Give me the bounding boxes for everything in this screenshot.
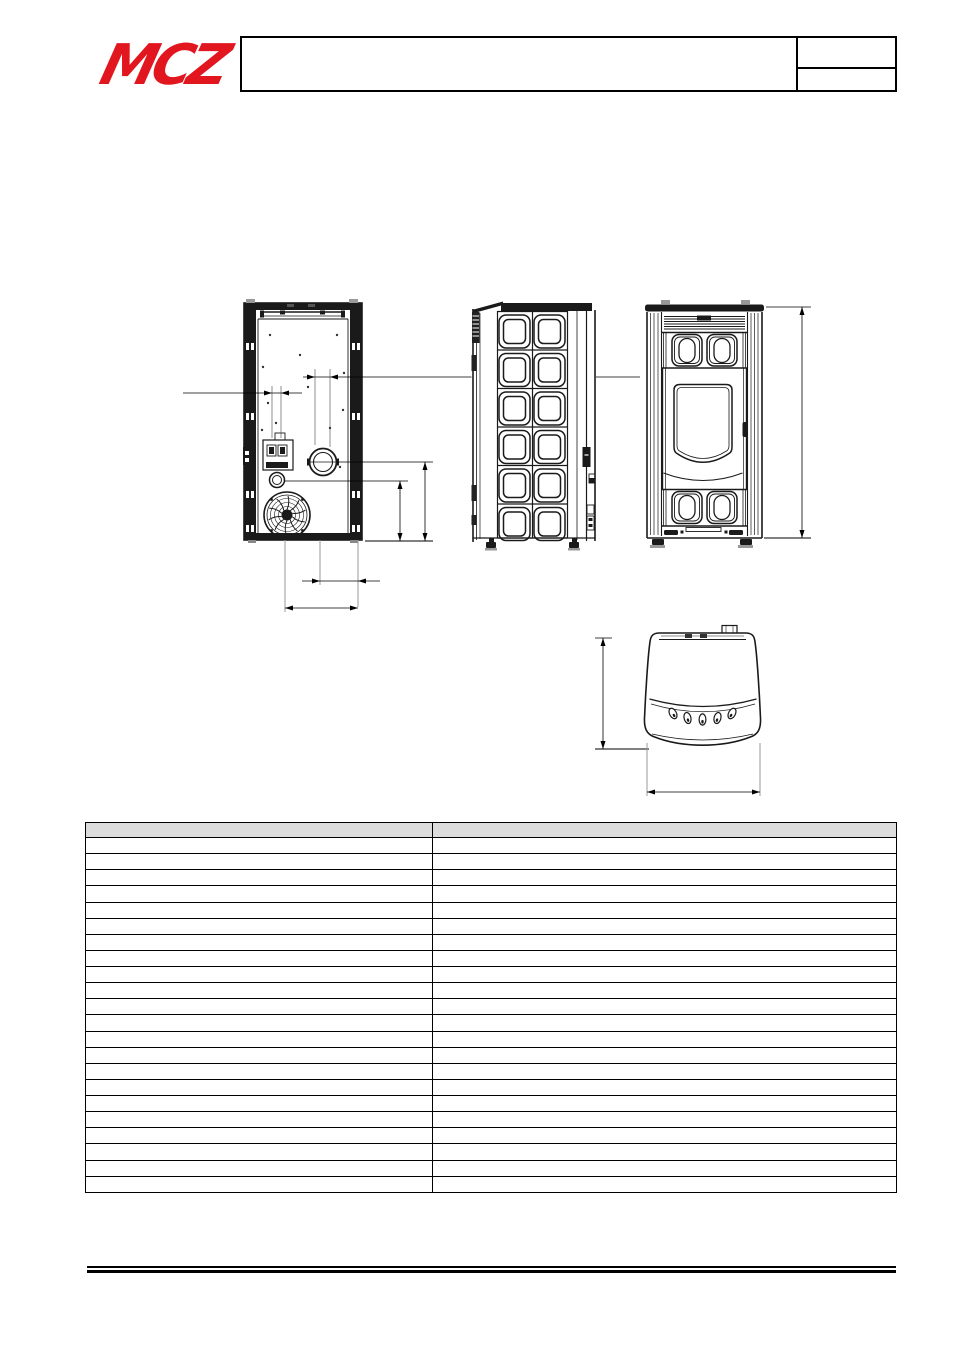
table-cell	[86, 838, 433, 854]
table-cell	[433, 886, 897, 902]
table-cell	[433, 838, 897, 854]
table-row	[86, 983, 897, 999]
table-row	[86, 870, 897, 886]
table-row	[86, 934, 897, 950]
table-row	[86, 1144, 897, 1160]
table-cell	[86, 1015, 433, 1031]
table-cell	[86, 886, 433, 902]
table-cell	[433, 1096, 897, 1112]
table-row	[86, 1015, 897, 1031]
front-view-drawing	[630, 295, 815, 550]
side-view-drawing	[455, 295, 605, 555]
table-cell	[86, 902, 433, 918]
table-cell	[433, 1079, 897, 1095]
table-row	[86, 1063, 897, 1079]
table-cell	[86, 854, 433, 870]
table-row	[86, 1112, 897, 1128]
table-cell	[86, 1047, 433, 1063]
table-cell	[433, 870, 897, 886]
table-cell	[433, 1144, 897, 1160]
table-cell	[86, 967, 433, 983]
table-cell	[433, 950, 897, 966]
top-view-drawing	[585, 615, 800, 805]
footer-rule-thick	[87, 1270, 896, 1273]
table-cell	[86, 870, 433, 886]
height-dimension	[764, 307, 811, 538]
document-title-cell	[242, 38, 796, 90]
table-row	[86, 1128, 897, 1144]
table-cell	[433, 1176, 897, 1192]
table-row	[86, 999, 897, 1015]
table-row	[86, 838, 897, 854]
header-title-block	[240, 36, 897, 92]
table-row	[86, 1047, 897, 1063]
table-row	[86, 854, 897, 870]
footer-rule-thin	[87, 1266, 896, 1268]
table-cell	[433, 918, 897, 934]
table-cell	[86, 918, 433, 934]
table-cell	[433, 999, 897, 1015]
table-row	[86, 1160, 897, 1176]
table-body	[86, 838, 897, 1193]
table-cell	[433, 902, 897, 918]
header-info-bottom-cell	[798, 69, 895, 90]
table-header-row	[86, 823, 897, 838]
table-cell	[433, 1063, 897, 1079]
table-cell	[433, 854, 897, 870]
table-cell	[86, 983, 433, 999]
table-cell	[86, 999, 433, 1015]
table-cell	[433, 934, 897, 950]
table-row	[86, 886, 897, 902]
table-row	[86, 902, 897, 918]
table-cell	[86, 950, 433, 966]
header-info-top-cell	[798, 38, 895, 69]
table-row	[86, 918, 897, 934]
table-cell	[433, 983, 897, 999]
table-cell	[86, 1031, 433, 1047]
table-cell	[433, 967, 897, 983]
mcz-logo-text: MCZ	[94, 33, 239, 98]
document-page: MCZ	[0, 0, 954, 1350]
table-cell	[86, 1176, 433, 1192]
table-cell	[86, 1079, 433, 1095]
table-cell	[86, 1112, 433, 1128]
table-row	[86, 1176, 897, 1192]
table-header-parameter	[86, 823, 433, 838]
table-cell	[433, 1128, 897, 1144]
specifications-table	[85, 822, 897, 1193]
door-handle	[743, 422, 749, 437]
table-row	[86, 1079, 897, 1095]
table-header-value	[433, 823, 897, 838]
table-cell	[433, 1031, 897, 1047]
table-cell	[86, 1096, 433, 1112]
extraction-fan	[264, 492, 310, 538]
table-cell	[86, 934, 433, 950]
table-cell	[86, 1063, 433, 1079]
table-row	[86, 1096, 897, 1112]
table-cell	[86, 1144, 433, 1160]
table-cell	[86, 1128, 433, 1144]
table-cell	[433, 1112, 897, 1128]
header-info-column	[796, 38, 895, 90]
table-row	[86, 967, 897, 983]
power-socket	[243, 447, 252, 465]
table-row	[86, 950, 897, 966]
table-cell	[433, 1047, 897, 1063]
table-row	[86, 1031, 897, 1047]
mcz-logo: MCZ	[95, 38, 237, 92]
table-cell	[86, 1160, 433, 1176]
table-cell	[433, 1160, 897, 1176]
table-cell	[433, 1015, 897, 1031]
